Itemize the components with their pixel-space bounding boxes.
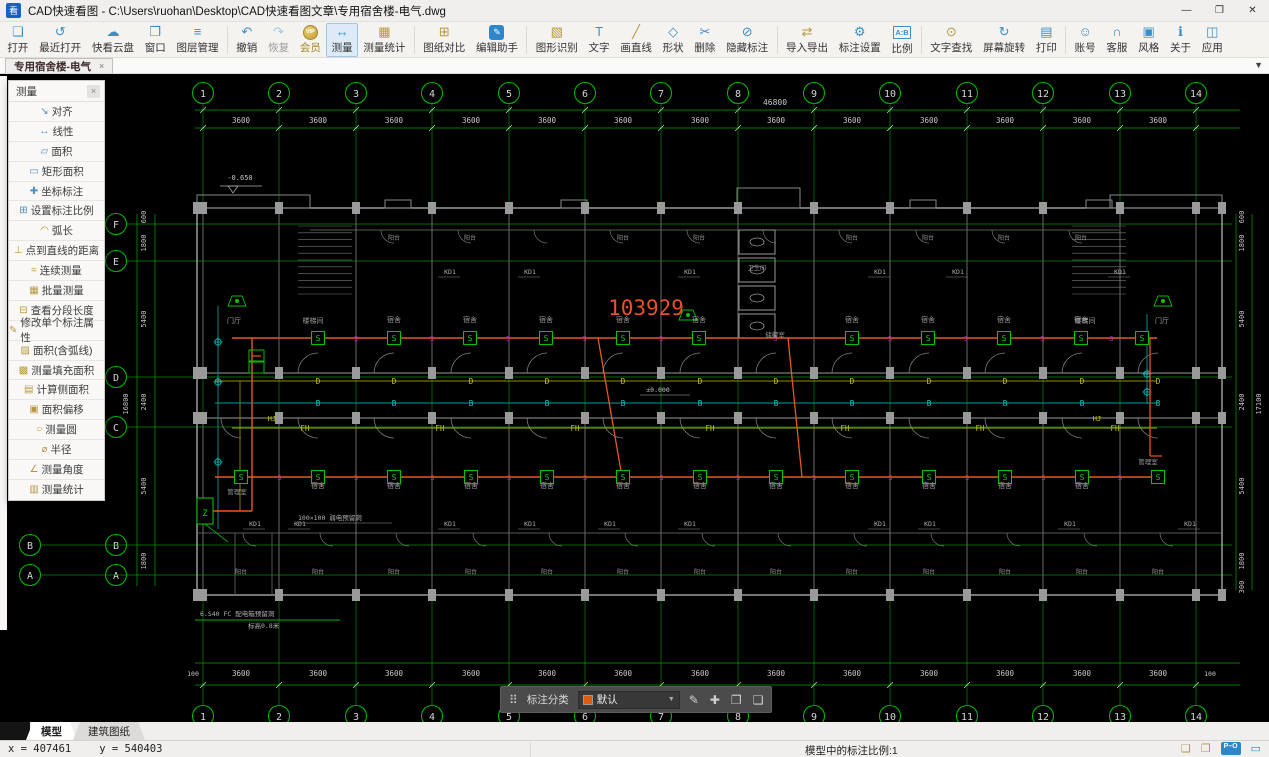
toolbar-separator xyxy=(921,26,922,54)
svg-text:FH: FH xyxy=(1110,424,1120,433)
area-offset-label: 面积偏移 xyxy=(42,402,84,417)
svg-text:D: D xyxy=(1156,377,1161,386)
svg-text:600: 600 xyxy=(1238,211,1246,224)
svg-text:2: 2 xyxy=(276,89,282,100)
layer-manager-icon: ≡ xyxy=(194,24,202,40)
svg-text:阳台: 阳台 xyxy=(388,568,400,576)
svg-text:宿舍: 宿舍 xyxy=(311,481,325,490)
svg-text:KD1: KD1 xyxy=(524,520,536,528)
svg-text:5400: 5400 xyxy=(140,478,148,495)
classify-selected: 默认 xyxy=(597,692,664,707)
svg-text:D: D xyxy=(392,377,397,386)
svg-text:阳台: 阳台 xyxy=(464,234,476,242)
svg-text:3600: 3600 xyxy=(385,116,404,125)
svg-text:宿舍: 宿舍 xyxy=(693,481,707,490)
svg-text:门厅: 门厅 xyxy=(1155,316,1169,325)
measure-angle-label: 测量角度 xyxy=(41,462,83,477)
svg-text:S: S xyxy=(659,474,663,482)
toolbar-separator xyxy=(414,26,415,54)
svg-text:1: 1 xyxy=(200,712,206,722)
svg-text:10: 10 xyxy=(884,89,896,100)
monitor-icon[interactable]: ▭ xyxy=(1251,742,1261,755)
measure-tool-area-with-arc[interactable]: ▨面积(含弧线) xyxy=(9,341,104,361)
svg-text:600: 600 xyxy=(140,211,148,224)
svg-text:S: S xyxy=(354,335,358,343)
note-icon[interactable]: ❏ xyxy=(1181,742,1191,755)
toolbar-button-cloud-drive[interactable]: ☁快看云盘 xyxy=(87,23,140,57)
svg-text:S: S xyxy=(698,473,703,482)
svg-text:阳台: 阳台 xyxy=(312,568,324,576)
svg-text:3600: 3600 xyxy=(1149,116,1168,125)
measure-tool-radius[interactable]: ⌀半径 xyxy=(9,440,104,460)
app-logo-icon: 看 xyxy=(6,3,21,18)
measure-tool-edit-single-annotation[interactable]: ✎修改单个标注属性 xyxy=(9,321,104,341)
toolbar-button-open[interactable]: ❏打开 xyxy=(2,23,34,57)
svg-text:S: S xyxy=(1002,334,1007,343)
measure-tool-batch-measure[interactable]: ▦批量测量 xyxy=(9,281,104,301)
batch-measure-label: 批量测量 xyxy=(42,283,84,298)
toolbar-separator xyxy=(777,26,778,54)
annotation-toolbar: ⠿ 标注分类 默认 ▼ ✎✚❐❏ xyxy=(500,686,772,713)
chevron-down-icon: ▼ xyxy=(668,696,675,703)
svg-text:9: 9 xyxy=(811,89,817,100)
apps-icon: ◫ xyxy=(1206,24,1218,40)
svg-text:S: S xyxy=(850,473,855,482)
close-button[interactable]: ✕ xyxy=(1236,0,1269,22)
measure-panel-close-icon[interactable]: × xyxy=(87,85,100,98)
svg-text:管理室: 管理室 xyxy=(1138,457,1158,466)
apps-label: 应用 xyxy=(1202,40,1223,55)
svg-text:FH: FH xyxy=(705,424,715,433)
toolbar-button-scale[interactable]: A:B比例 xyxy=(886,23,918,57)
toolbar-button-draw-line[interactable]: ╱画直线 xyxy=(615,23,657,57)
shapes-icon: ◇ xyxy=(668,24,678,40)
undo-icon: ↶ xyxy=(241,24,252,40)
measure-tool-align[interactable]: ↘对齐 xyxy=(9,102,104,122)
toolbar-button-annotation-settings[interactable]: ⚙标注设置 xyxy=(833,23,886,57)
svg-text:阳台: 阳台 xyxy=(693,234,705,242)
titlebar: 看 CAD快速看图 - C:\Users\ruohan\Desktop\CAD快… xyxy=(0,0,1269,22)
svg-text:3600: 3600 xyxy=(767,116,786,125)
window-label: 窗口 xyxy=(145,40,166,55)
measure-tool-continuous-measure[interactable]: ≈连续测量 xyxy=(9,261,104,281)
svg-text:3: 3 xyxy=(353,712,359,722)
svg-text:8: 8 xyxy=(735,89,741,100)
edit-assistant-label: 编辑助手 xyxy=(476,40,518,55)
svg-text:宿舍: 宿舍 xyxy=(387,481,401,490)
svg-text:D: D xyxy=(316,377,321,386)
svg-text:阳台: 阳台 xyxy=(922,234,934,242)
align-label: 对齐 xyxy=(52,104,73,119)
svg-text:S: S xyxy=(659,335,663,343)
svg-text:3600: 3600 xyxy=(691,669,710,678)
svg-text:KD1: KD1 xyxy=(952,268,964,276)
svg-text:B: B xyxy=(469,399,474,408)
app-window: 看 CAD快速看图 - C:\Users\ruohan\Desktop\CAD快… xyxy=(0,0,1269,757)
measure-label: 测量 xyxy=(332,40,353,55)
svg-text:3600: 3600 xyxy=(843,116,862,125)
toolbar-button-account[interactable]: ☺账号 xyxy=(1069,23,1101,57)
delete-label: 删除 xyxy=(694,40,715,55)
open-label: 打开 xyxy=(7,40,28,55)
measure-tool-area-offset[interactable]: ▣面积偏移 xyxy=(9,400,104,420)
sheet-tab-arch-sheet[interactable]: 建筑图纸 xyxy=(73,722,145,740)
svg-text:S: S xyxy=(1040,335,1044,343)
annotation-scale-text: 模型中的标注比例:1 xyxy=(805,743,898,757)
svg-text:D: D xyxy=(1080,377,1085,386)
svg-text:D: D xyxy=(1003,377,1008,386)
sheet-strip-corner xyxy=(0,722,30,740)
svg-text:D: D xyxy=(621,377,626,386)
svg-text:阳台: 阳台 xyxy=(235,568,247,576)
svg-text:宿舍: 宿舍 xyxy=(921,315,935,324)
svg-text:S: S xyxy=(277,474,281,482)
svg-text:7: 7 xyxy=(658,89,664,100)
measure-stats-icon: ▥ xyxy=(29,484,38,495)
svg-text:KD1: KD1 xyxy=(684,520,696,528)
svg-text:S: S xyxy=(239,473,244,482)
toolbar-button-hide-annotation[interactable]: ⊘隐藏标注 xyxy=(721,23,774,57)
po-badge-icon[interactable]: P–O xyxy=(1221,742,1241,755)
document-tab[interactable]: 专用宿舍楼-电气 × xyxy=(5,58,113,73)
share-icon[interactable]: ❐ xyxy=(1201,742,1211,755)
scale-icon: A:B xyxy=(893,26,910,39)
annotation-settings-icon: ⚙ xyxy=(854,24,866,40)
svg-text:S: S xyxy=(506,335,510,343)
classify-dropdown[interactable]: 默认 ▼ xyxy=(578,691,680,709)
drawing-compare-icon: ⊞ xyxy=(439,24,450,40)
set-annotation-scale-label: 设置标注比例 xyxy=(31,203,94,218)
svg-text:D: D xyxy=(698,377,703,386)
toolbar-button-screen-rotate[interactable]: ↻屏幕旋转 xyxy=(978,23,1031,57)
style-icon: ▣ xyxy=(1143,24,1155,40)
document-tabbar: 专用宿舍楼-电气 × ▼ xyxy=(0,58,1269,74)
area-icon: ▱ xyxy=(41,146,49,157)
coord-annotation-icon: ✚ xyxy=(30,186,38,197)
svg-text:宿舍: 宿舍 xyxy=(845,315,859,324)
svg-text:3: 3 xyxy=(353,89,359,100)
svg-text:3600: 3600 xyxy=(691,116,710,125)
area-label: 面积 xyxy=(51,144,72,159)
svg-text:16800: 16800 xyxy=(122,393,130,414)
side-area-icon: ▤ xyxy=(24,384,33,395)
svg-text:1800: 1800 xyxy=(140,553,148,570)
svg-text:3600: 3600 xyxy=(843,669,862,678)
minimize-button[interactable]: — xyxy=(1170,0,1203,22)
measure-stats-label: 测量统计 xyxy=(42,482,84,497)
svg-text:门厅: 门厅 xyxy=(227,316,241,325)
measure-tool-linear[interactable]: ↔线性 xyxy=(9,122,104,142)
svg-text:2400: 2400 xyxy=(1238,394,1246,411)
svg-text:KD1: KD1 xyxy=(604,520,616,528)
toolbar-button-measure-stats[interactable]: ▦测量统计 xyxy=(358,23,411,57)
svg-text:阳台: 阳台 xyxy=(1076,568,1088,576)
svg-text:B: B xyxy=(774,399,779,408)
edit-single-annotation-icon: ✎ xyxy=(9,325,17,336)
svg-text:14: 14 xyxy=(1190,712,1202,722)
svg-text:-0.650: -0.650 xyxy=(227,174,252,182)
svg-text:S: S xyxy=(965,474,969,482)
svg-text:卫生间: 卫生间 xyxy=(748,264,766,272)
svg-text:标高0.8米: 标高0.8米 xyxy=(248,621,280,630)
svg-text:100: 100 xyxy=(187,670,199,678)
import-export-icon: ⇄ xyxy=(802,24,813,40)
area-with-arc-icon: ▨ xyxy=(21,345,30,356)
sheet-tab-strip: 模型建筑图纸 xyxy=(0,722,1269,740)
toolbar-button-edit-assistant[interactable]: ✎编辑助手 xyxy=(471,23,524,57)
svg-text:B: B xyxy=(1080,399,1085,408)
toolbar-button-delete[interactable]: ✂删除 xyxy=(689,23,721,57)
classify-grid-icon[interactable]: ⠿ xyxy=(509,693,518,707)
svg-text:S: S xyxy=(392,473,397,482)
svg-text:3600: 3600 xyxy=(462,116,481,125)
svg-text:4: 4 xyxy=(429,712,435,722)
toolbar-button-vip-member[interactable]: VIP会员 xyxy=(294,23,326,57)
svg-text:11: 11 xyxy=(961,712,973,722)
toolbar-button-customer-service[interactable]: ∩客服 xyxy=(1101,23,1133,57)
svg-text:9: 9 xyxy=(811,712,817,722)
svg-text:B: B xyxy=(27,541,33,552)
toolbar-button-text-search[interactable]: ⊙文字查找 xyxy=(925,23,978,57)
layer-manager-label: 图层管理 xyxy=(177,40,219,55)
tab-close-icon[interactable]: × xyxy=(99,61,104,71)
svg-text:10: 10 xyxy=(884,712,896,722)
toolbar-button-apps[interactable]: ◫应用 xyxy=(1196,23,1228,57)
shape-recognition-label: 图形识别 xyxy=(536,40,578,55)
toolbar-button-window[interactable]: ❒窗口 xyxy=(139,23,171,57)
text-search-icon: ⊙ xyxy=(946,24,957,40)
paste-annotation-icon[interactable]: ❏ xyxy=(753,693,764,707)
customer-service-icon: ∩ xyxy=(1112,24,1121,40)
svg-text:103929: 103929 xyxy=(608,296,684,320)
point-to-line-label: 点到直线的距离 xyxy=(26,243,100,258)
svg-text:3600: 3600 xyxy=(614,116,633,125)
svg-text:宿舍: 宿舍 xyxy=(540,481,554,490)
svg-text:D: D xyxy=(113,373,119,384)
svg-text:14: 14 xyxy=(1190,89,1202,100)
rect-area-label: 矩形面积 xyxy=(42,164,84,179)
svg-text:阳台: 阳台 xyxy=(999,568,1011,576)
classify-color-swatch xyxy=(583,695,593,705)
classify-label: 标注分类 xyxy=(527,692,569,707)
toolbar-button-text[interactable]: T文字 xyxy=(583,23,615,57)
svg-text:B: B xyxy=(621,399,626,408)
measure-tool-coord-annotation[interactable]: ✚坐标标注 xyxy=(9,182,104,202)
toolbar-button-import-export[interactable]: ⇄导入导出 xyxy=(781,23,834,57)
svg-text:S: S xyxy=(316,334,321,343)
svg-text:KD1: KD1 xyxy=(684,268,696,276)
svg-text:12: 12 xyxy=(1037,89,1049,100)
toolbar-button-layer-manager[interactable]: ≡图层管理 xyxy=(171,23,224,57)
svg-text:S: S xyxy=(888,474,892,482)
svg-text:3600: 3600 xyxy=(767,669,786,678)
measure-stats-label: 测量统计 xyxy=(363,40,405,55)
measure-tool-arc-length[interactable]: ◠弧长 xyxy=(9,221,104,241)
svg-text:3600: 3600 xyxy=(920,116,939,125)
measure-tool-point-to-line[interactable]: ⊥点到直线的距离 xyxy=(9,241,104,261)
toolbar-button-shape-recognition[interactable]: ▧图形识别 xyxy=(530,23,583,57)
shapes-label: 形状 xyxy=(663,40,684,55)
svg-text:4: 4 xyxy=(429,89,435,100)
svg-text:S: S xyxy=(697,334,702,343)
svg-text:阳台: 阳台 xyxy=(846,568,858,576)
cursor-coordinates: x = 407461y = 540403 xyxy=(8,743,190,755)
area-with-arc-label: 面积(含弧线) xyxy=(33,343,93,358)
recent-open-label: 最近打开 xyxy=(39,40,81,55)
svg-text:阳台: 阳台 xyxy=(541,568,553,576)
copy-annotation-icon[interactable]: ❐ xyxy=(731,693,742,707)
svg-text:S: S xyxy=(850,334,855,343)
svg-text:宿舍: 宿舍 xyxy=(616,481,630,490)
svg-text:D: D xyxy=(927,377,932,386)
svg-text:D: D xyxy=(774,377,779,386)
svg-text:S: S xyxy=(582,335,586,343)
toolbar-button-recent-open[interactable]: ↺最近打开 xyxy=(34,23,87,57)
rect-area-icon: ▭ xyxy=(29,166,38,177)
svg-text:HJ: HJ xyxy=(268,415,276,423)
toolbar-button-print[interactable]: ▤打印 xyxy=(1030,23,1062,57)
sheet-tab-model[interactable]: 模型 xyxy=(26,722,77,740)
toolbar-button-measure[interactable]: ↔测量 xyxy=(326,23,358,57)
svg-text:阳台: 阳台 xyxy=(465,568,477,576)
svg-text:3600: 3600 xyxy=(614,669,633,678)
main-toolbar: ❏打开↺最近打开☁快看云盘❒窗口≡图层管理↶撤销↷恢复VIP会员↔测量▦测量统计… xyxy=(0,22,1269,58)
svg-text:1800: 1800 xyxy=(1238,553,1246,570)
about-icon: ℹ xyxy=(1178,24,1183,40)
svg-text:S: S xyxy=(507,474,511,482)
svg-text:宿舍: 宿舍 xyxy=(845,481,859,490)
toolbar-button-shapes[interactable]: ◇形状 xyxy=(657,23,689,57)
move-annotation-icon[interactable]: ✚ xyxy=(710,693,720,707)
toolbar-separator xyxy=(1065,26,1066,54)
edit-annotation-icon[interactable]: ✎ xyxy=(689,693,699,707)
svg-text:B: B xyxy=(1156,399,1161,408)
radius-label: 半径 xyxy=(51,442,72,457)
svg-text:阳台: 阳台 xyxy=(1152,568,1164,576)
svg-text:S: S xyxy=(812,474,816,482)
svg-text:S: S xyxy=(774,473,779,482)
print-icon: ▤ xyxy=(1040,24,1052,40)
toolbar-button-drawing-compare[interactable]: ⊞图纸对比 xyxy=(418,23,471,57)
svg-text:宿舍: 宿舍 xyxy=(769,481,783,490)
svg-text:FH: FH xyxy=(570,424,580,433)
measure-tool-rect-area[interactable]: ▭矩形面积 xyxy=(9,162,104,182)
svg-text:S: S xyxy=(583,474,587,482)
svg-text:C: C xyxy=(113,423,119,434)
svg-text:6: 6 xyxy=(582,89,588,100)
measure-tool-side-area[interactable]: ▤计算侧面积 xyxy=(9,380,104,400)
account-icon: ☺ xyxy=(1079,24,1092,40)
svg-text:KD1: KD1 xyxy=(524,268,536,276)
svg-text:宿舍: 宿舍 xyxy=(997,315,1011,324)
draw-line-label: 画直线 xyxy=(620,40,652,55)
svg-text:S: S xyxy=(1080,473,1085,482)
svg-text:B: B xyxy=(850,399,855,408)
toolbar-button-style[interactable]: ▣风格 xyxy=(1133,23,1165,57)
vip-member-icon: VIP xyxy=(303,25,318,40)
svg-text:FH: FH xyxy=(435,424,445,433)
svg-text:Z: Z xyxy=(202,509,208,519)
svg-text:D: D xyxy=(469,377,474,386)
tab-overflow-icon[interactable]: ▼ xyxy=(1254,60,1263,70)
svg-text:S: S xyxy=(430,335,434,343)
svg-text:阳台: 阳台 xyxy=(923,568,935,576)
continuous-measure-icon: ≈ xyxy=(31,265,37,276)
customer-service-label: 客服 xyxy=(1106,40,1127,55)
svg-text:3600: 3600 xyxy=(1149,669,1168,678)
account-label: 账号 xyxy=(1075,40,1096,55)
svg-text:S: S xyxy=(430,474,434,482)
svg-text:F: F xyxy=(113,220,119,231)
svg-text:5400: 5400 xyxy=(1238,478,1246,495)
svg-text:S: S xyxy=(927,473,932,482)
svg-text:7: 7 xyxy=(658,712,664,722)
svg-text:S: S xyxy=(1118,474,1122,482)
svg-text:阳台: 阳台 xyxy=(846,234,858,242)
svg-text:5400: 5400 xyxy=(1238,311,1246,328)
svg-text:3600: 3600 xyxy=(1073,669,1092,678)
measure-tool-measure-circle[interactable]: ○测量圆 xyxy=(9,420,104,440)
toolbar-button-undo[interactable]: ↶撤销 xyxy=(231,23,263,57)
toolbar-separator xyxy=(227,26,228,54)
svg-text:3600: 3600 xyxy=(309,669,328,678)
svg-text:S: S xyxy=(468,334,473,343)
undo-label: 撤销 xyxy=(236,40,257,55)
cad-canvas[interactable]: 3600360036003600360036003600360036003600… xyxy=(0,74,1269,722)
toolbar-button-redo[interactable]: ↷恢复 xyxy=(263,23,295,57)
fill-area-label: 测量填充面积 xyxy=(31,363,94,378)
svg-text:3600: 3600 xyxy=(538,116,557,125)
continuous-measure-label: 连续测量 xyxy=(40,263,82,278)
svg-text:S: S xyxy=(392,334,397,343)
screen-rotate-label: 屏幕旋转 xyxy=(983,40,1025,55)
measure-stats-icon: ▦ xyxy=(378,24,390,40)
shape-recognition-icon: ▧ xyxy=(551,24,563,40)
svg-text:S: S xyxy=(1140,334,1145,343)
toolbar-button-about[interactable]: ℹ关于 xyxy=(1165,23,1197,57)
svg-text:46800: 46800 xyxy=(763,98,787,107)
hide-annotation-label: 隐藏标注 xyxy=(726,40,768,55)
linear-label: 线性 xyxy=(53,124,74,139)
svg-text:宿舍: 宿舍 xyxy=(464,481,478,490)
measure-circle-icon: ○ xyxy=(36,424,42,435)
measure-tool-area[interactable]: ▱面积 xyxy=(9,142,104,162)
svg-text:12: 12 xyxy=(1037,712,1049,722)
svg-text:S: S xyxy=(1003,473,1008,482)
svg-text:S: S xyxy=(354,474,358,482)
recent-open-icon: ↺ xyxy=(55,24,66,40)
measure-tool-set-annotation-scale[interactable]: ⊞设置标注比例 xyxy=(9,201,104,221)
svg-text:宿舍: 宿舍 xyxy=(998,481,1012,490)
svg-text:KD1: KD1 xyxy=(924,520,936,528)
radius-icon: ⌀ xyxy=(41,444,47,455)
measure-tool-measure-stats[interactable]: ▥测量统计 xyxy=(9,480,104,500)
cad-drawing: 3600360036003600360036003600360036003600… xyxy=(0,74,1269,722)
svg-text:KD1: KD1 xyxy=(1114,268,1126,276)
about-label: 关于 xyxy=(1170,40,1191,55)
restore-button[interactable]: ❐ xyxy=(1203,0,1236,22)
measure-circle-label: 测量圆 xyxy=(45,422,77,437)
svg-text:B: B xyxy=(927,399,932,408)
svg-text:3600: 3600 xyxy=(1073,116,1092,125)
text-icon: T xyxy=(595,24,603,40)
measure-tool-fill-area[interactable]: ▩测量填充面积 xyxy=(9,361,104,381)
segment-length-icon: ⊟ xyxy=(19,305,27,316)
svg-text:5400: 5400 xyxy=(140,311,148,328)
measure-panel-title: 测量 xyxy=(16,84,37,99)
measure-tool-measure-angle[interactable]: ∠测量角度 xyxy=(9,460,104,480)
svg-text:1800: 1800 xyxy=(1238,235,1246,252)
